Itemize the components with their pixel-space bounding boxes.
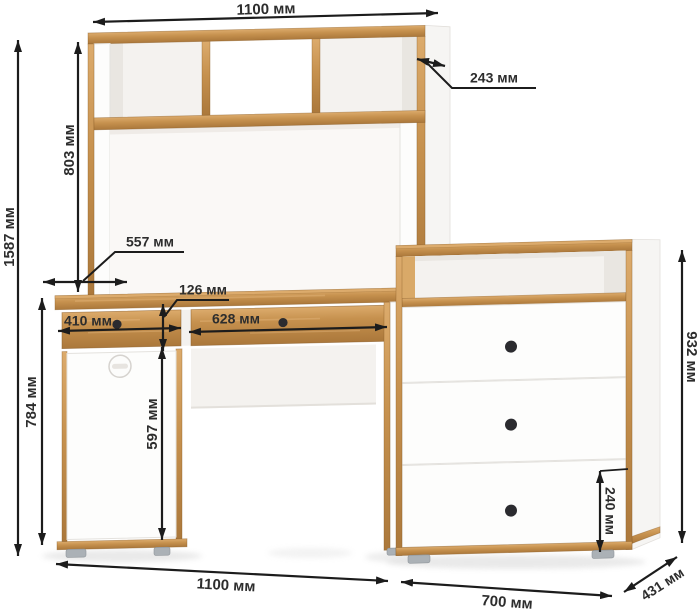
desk-leg-panel-edge	[384, 302, 390, 550]
desk-foot-left	[66, 549, 86, 557]
desk-with-hutch	[55, 25, 450, 563]
hutch-back-wall	[110, 123, 400, 295]
dimension-desk-height: 784 мм	[23, 298, 42, 545]
dim-label-chest-depth: 431 мм	[638, 564, 687, 604]
hutch-compartment-left	[110, 41, 202, 117]
hutch-divider-right	[312, 39, 320, 113]
dim-label-door-height: 597 мм	[144, 398, 161, 449]
dimension-chest-height: 932 мм	[682, 250, 700, 543]
chest-foot-right	[592, 550, 614, 559]
hutch-left-upright	[94, 44, 110, 295]
dimension-total-height: 1587 мм	[1, 40, 18, 556]
diagram-canvas: 1100 мм 243 мм 803 мм 1587 мм 557 мм 126…	[0, 0, 700, 614]
dim-label-chest-height: 932 мм	[683, 331, 700, 382]
chest-of-drawers	[396, 239, 660, 564]
chest-right-side-panel	[632, 239, 660, 550]
dim-label-right-drawer-width: 628 мм	[212, 311, 260, 327]
chest-foot-left	[408, 555, 430, 564]
hutch-divider-left	[202, 41, 210, 115]
hutch-left-upright-edge	[88, 44, 94, 295]
hutch-compartment-left-wall	[110, 43, 123, 117]
dim-label-desktop-depth: 557 мм	[126, 234, 174, 250]
chest-open-shelf-right-wall	[604, 251, 626, 294]
dimension-hutch-top-width: 1100 мм	[93, 0, 438, 22]
desk-drawer-gap	[181, 310, 191, 346]
dimension-chest-width: 700 мм	[401, 582, 612, 613]
chest-left-edge	[396, 256, 402, 555]
chest-right-front-edge	[626, 250, 632, 549]
dimension-hutch-height: 803 мм	[61, 42, 78, 292]
dimension-desk-width: 1100 мм	[56, 564, 388, 595]
desk-kneespace-back-panel	[191, 344, 376, 408]
shadow-under-kneespace	[268, 548, 352, 558]
dim-label-desk-height: 784 мм	[23, 376, 40, 427]
dim-label-left-drawer-width: 410 мм	[64, 313, 112, 329]
cabinet-door-handle-slot	[112, 364, 128, 369]
hutch-compartment-middle-open	[210, 39, 312, 115]
desk-pedestal-right-edge	[176, 349, 182, 539]
desk-foot-right	[154, 547, 170, 555]
furniture-dimension-diagram: 1100 мм 243 мм 803 мм 1587 мм 557 мм 126…	[0, 0, 700, 614]
chest-drawer-3	[402, 460, 626, 548]
dim-label-desk-width: 1100 мм	[196, 575, 256, 595]
dim-label-hutch-height: 803 мм	[61, 124, 78, 175]
dim-label-chest-bottom-drawer-height: 240 мм	[602, 487, 618, 535]
desk-pedestal-left-edge	[62, 351, 67, 541]
dim-label-drawer-front-height: 126 мм	[179, 282, 227, 298]
dim-label-total-height: 1587 мм	[1, 207, 18, 267]
dim-label-hutch-depth: 243 мм	[470, 70, 518, 86]
chest-open-shelf-left-wall	[402, 256, 415, 298]
dim-label-chest-width: 700 мм	[481, 592, 533, 613]
hutch-compartment-right-wall	[402, 37, 417, 111]
dim-label-hutch-top-width: 1100 мм	[236, 0, 295, 19]
